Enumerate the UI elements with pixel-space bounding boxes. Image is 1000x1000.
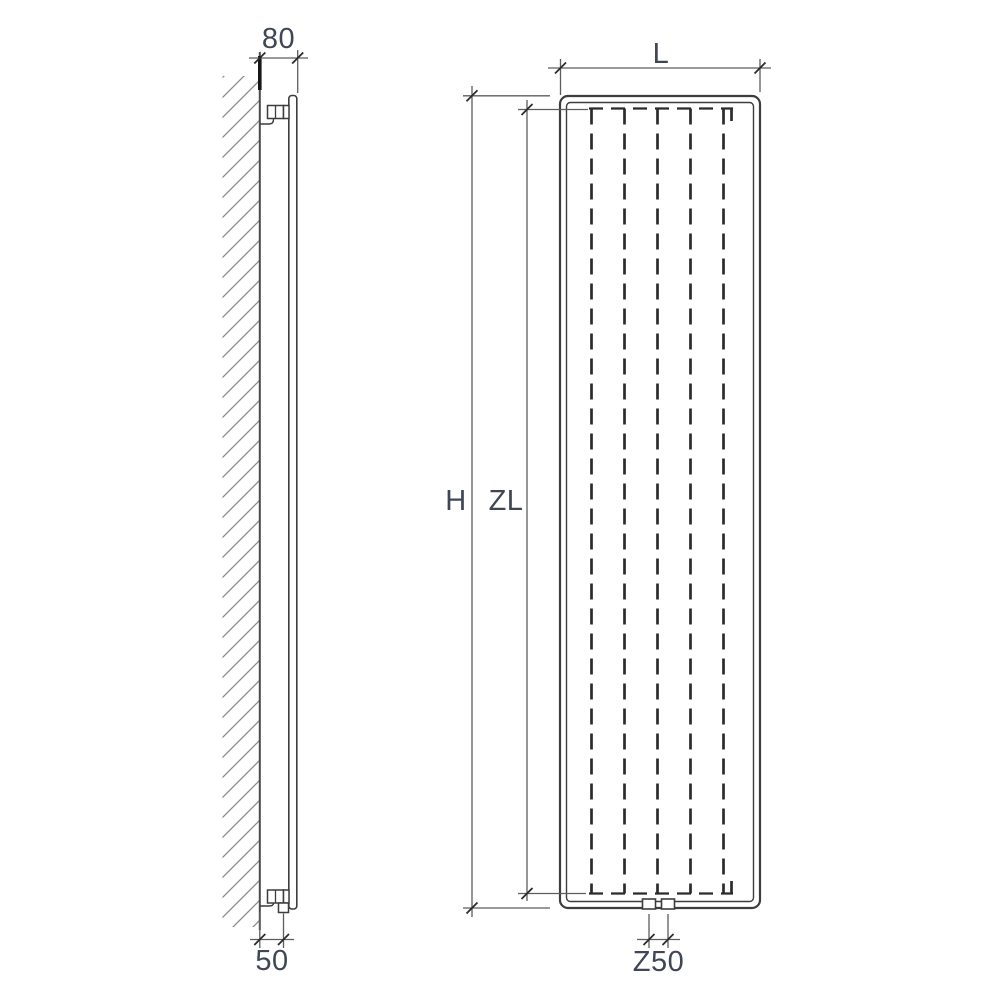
radiator-dimension-drawing: 80 50: [0, 0, 1000, 1000]
connection-right: [662, 899, 675, 909]
dimension-80-label: 80: [262, 23, 295, 55]
dimension-H-label: H: [445, 485, 466, 517]
bottom-connection-stub: [279, 903, 289, 913]
bracket-bottom-connector: [284, 890, 290, 903]
dimension-50-label: 50: [255, 945, 288, 977]
wall-bracket-top: [260, 106, 289, 125]
bracket-top-hook: [260, 119, 274, 125]
wall-hatch: [223, 76, 260, 927]
dimension-L-label: L: [653, 38, 670, 70]
drawing-canvas: 80 50: [0, 0, 1000, 1000]
side-view: [223, 52, 297, 930]
radiator-frame-outer: [560, 96, 760, 908]
dimension-Z50-label: Z50: [633, 946, 684, 978]
bracket-top-connector: [284, 106, 290, 119]
radiator-panel-profile: [289, 96, 297, 910]
dimension-L: L: [548, 38, 771, 95]
dimension-Z50: Z50: [633, 914, 684, 978]
wall-bracket-bottom: [260, 890, 289, 913]
connection-left: [643, 899, 656, 909]
front-view: [560, 96, 760, 909]
dimension-ZL-label: ZL: [489, 485, 524, 517]
